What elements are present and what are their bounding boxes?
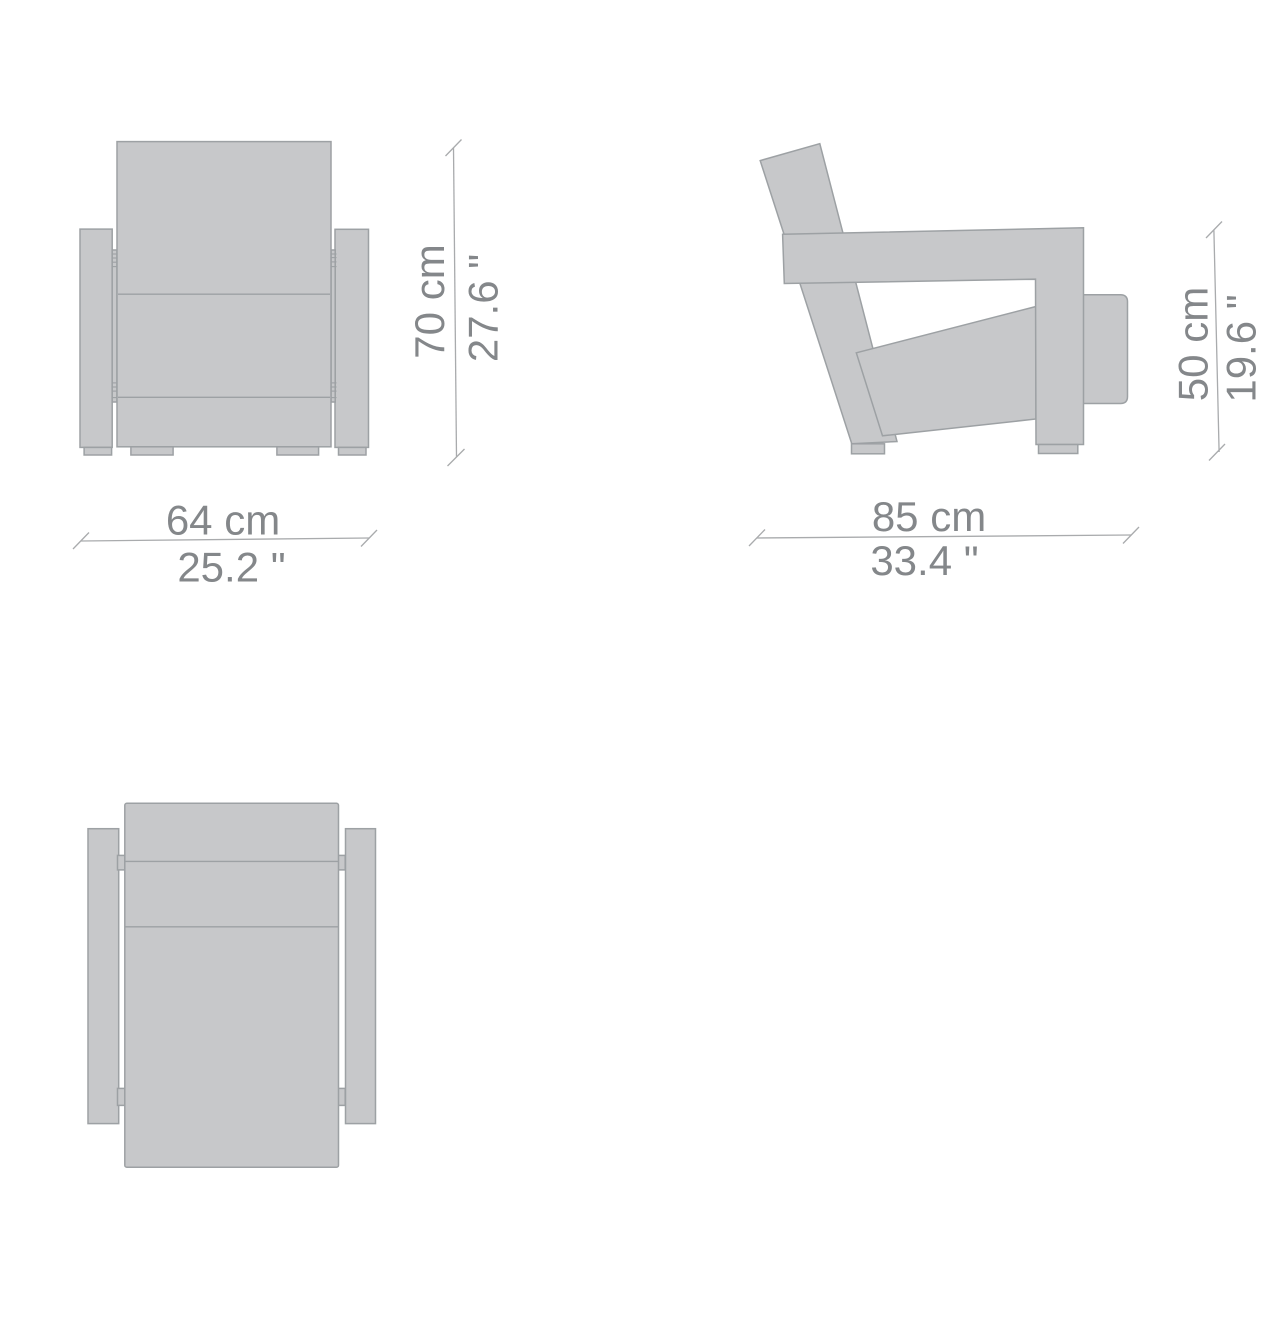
svg-text:25.2 ": 25.2 " — [177, 544, 285, 591]
svg-text:19.6 ": 19.6 " — [1218, 294, 1265, 402]
svg-text:85 cm: 85 cm — [872, 493, 986, 540]
svg-text:70 cm: 70 cm — [406, 244, 453, 358]
svg-text:27.6 ": 27.6 " — [460, 254, 507, 362]
svg-text:33.4 ": 33.4 " — [870, 537, 978, 584]
svg-text:64 cm: 64 cm — [166, 497, 280, 544]
svg-text:50 cm: 50 cm — [1170, 287, 1217, 401]
